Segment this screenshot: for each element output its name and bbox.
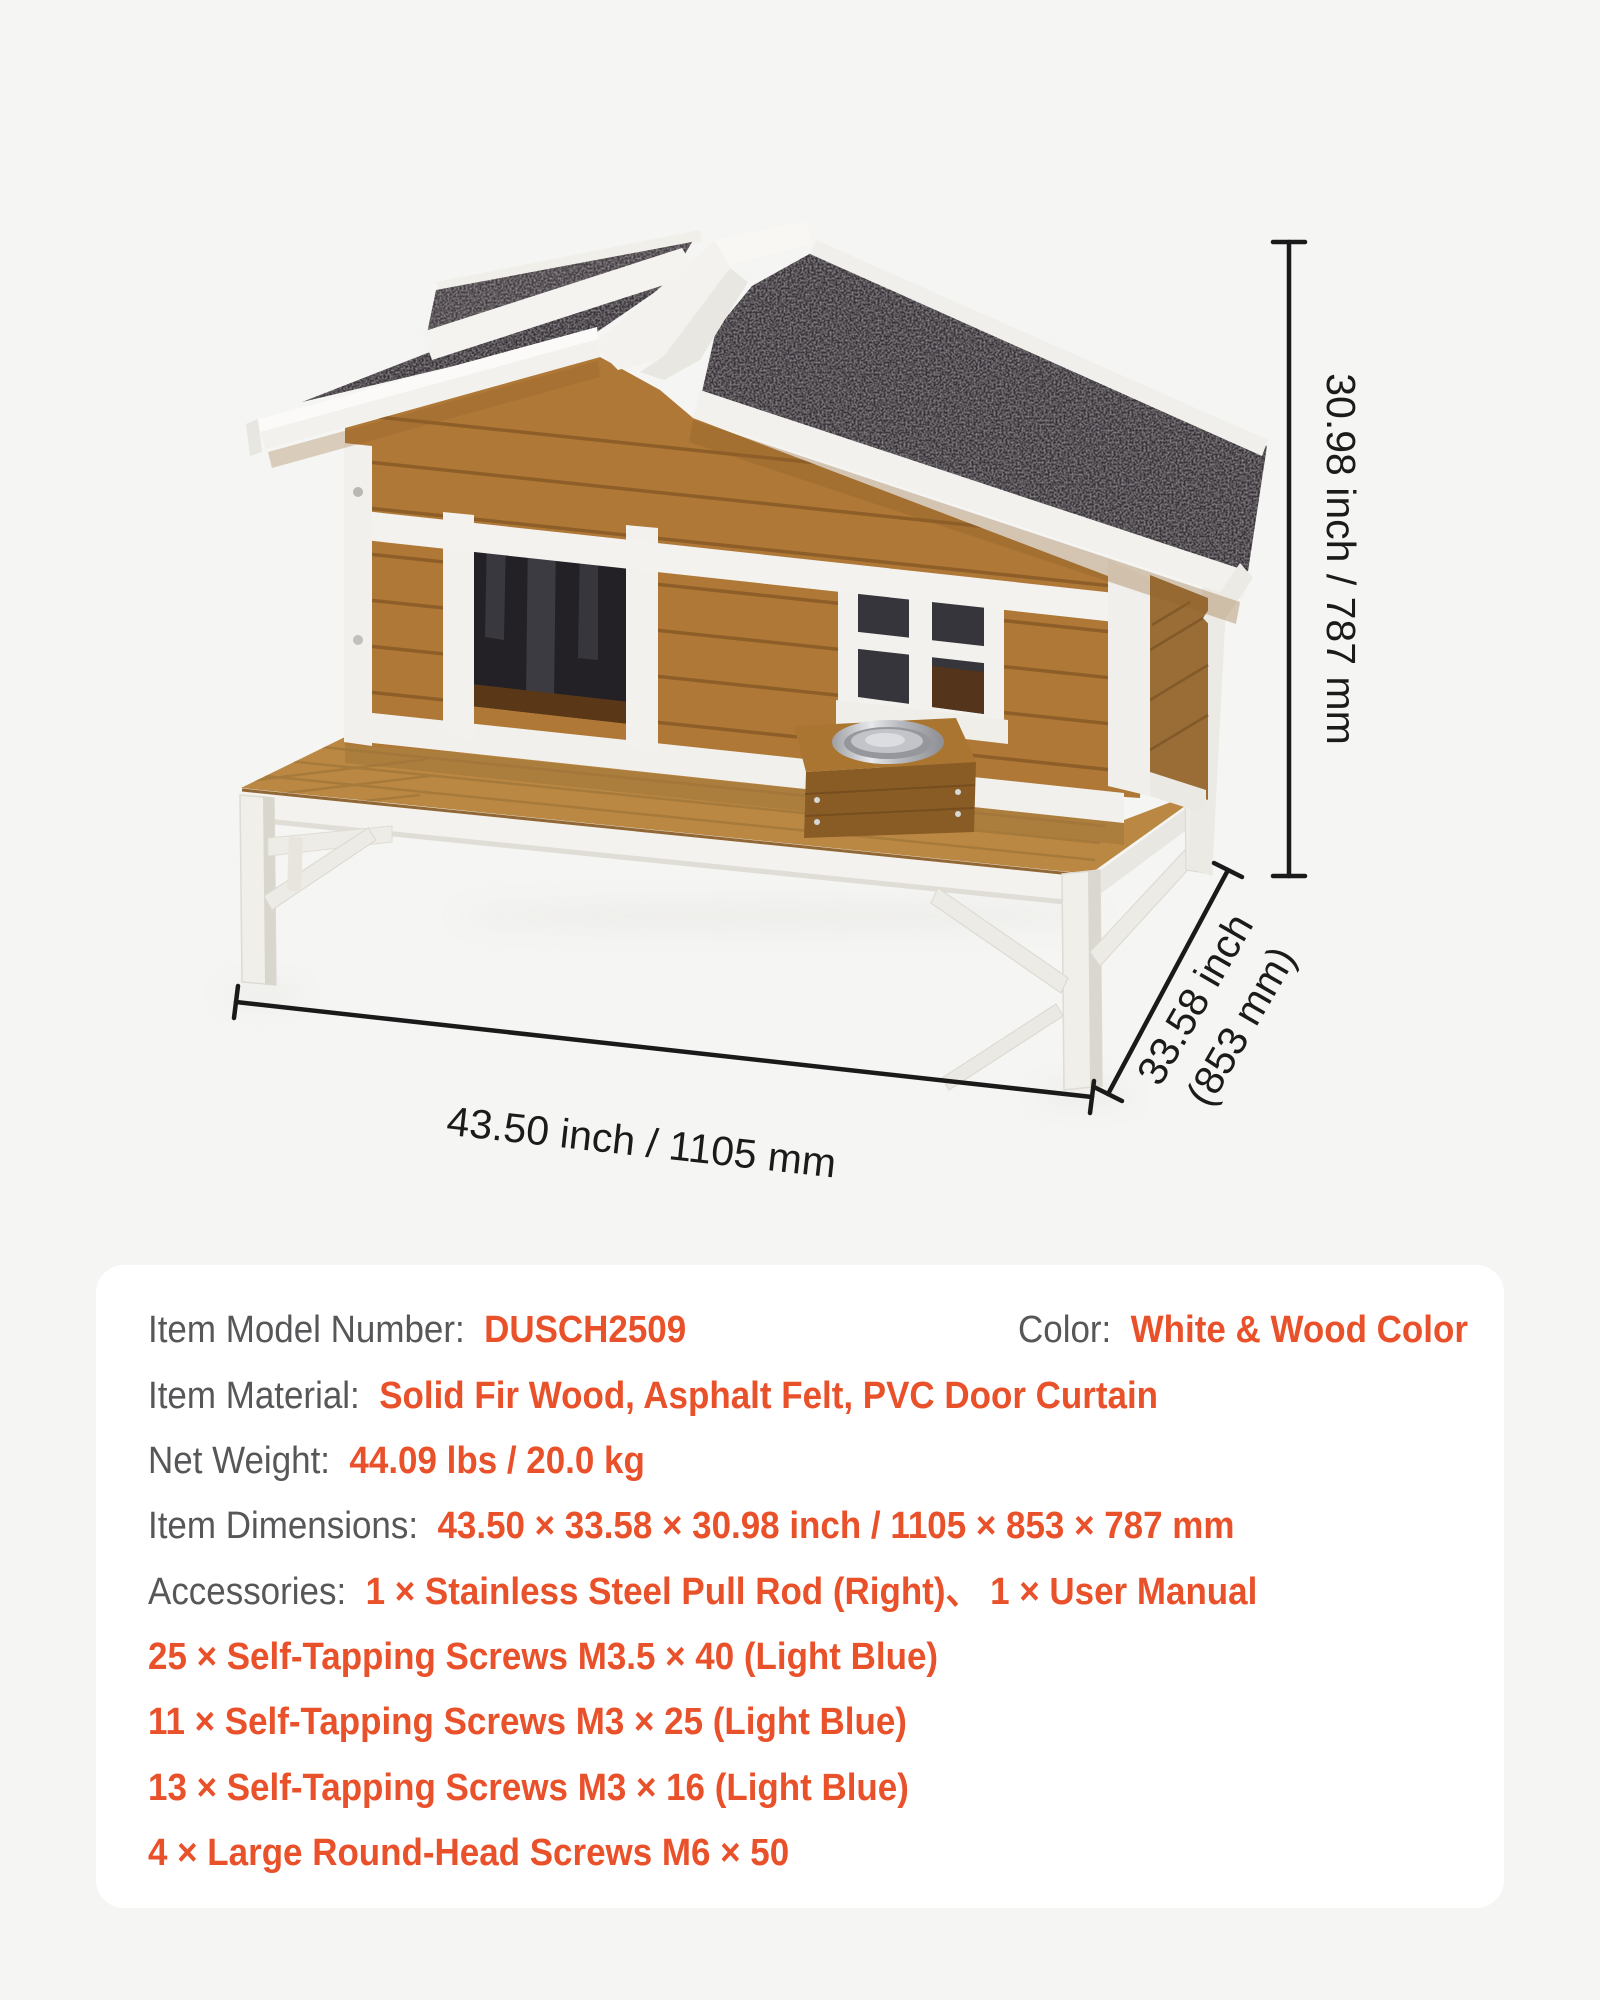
svg-text:43.50 inch / 1105 mm: 43.50 inch / 1105 mm	[445, 1098, 839, 1187]
svg-text:30.98 inch / 787 mm: 30.98 inch / 787 mm	[1318, 373, 1364, 744]
